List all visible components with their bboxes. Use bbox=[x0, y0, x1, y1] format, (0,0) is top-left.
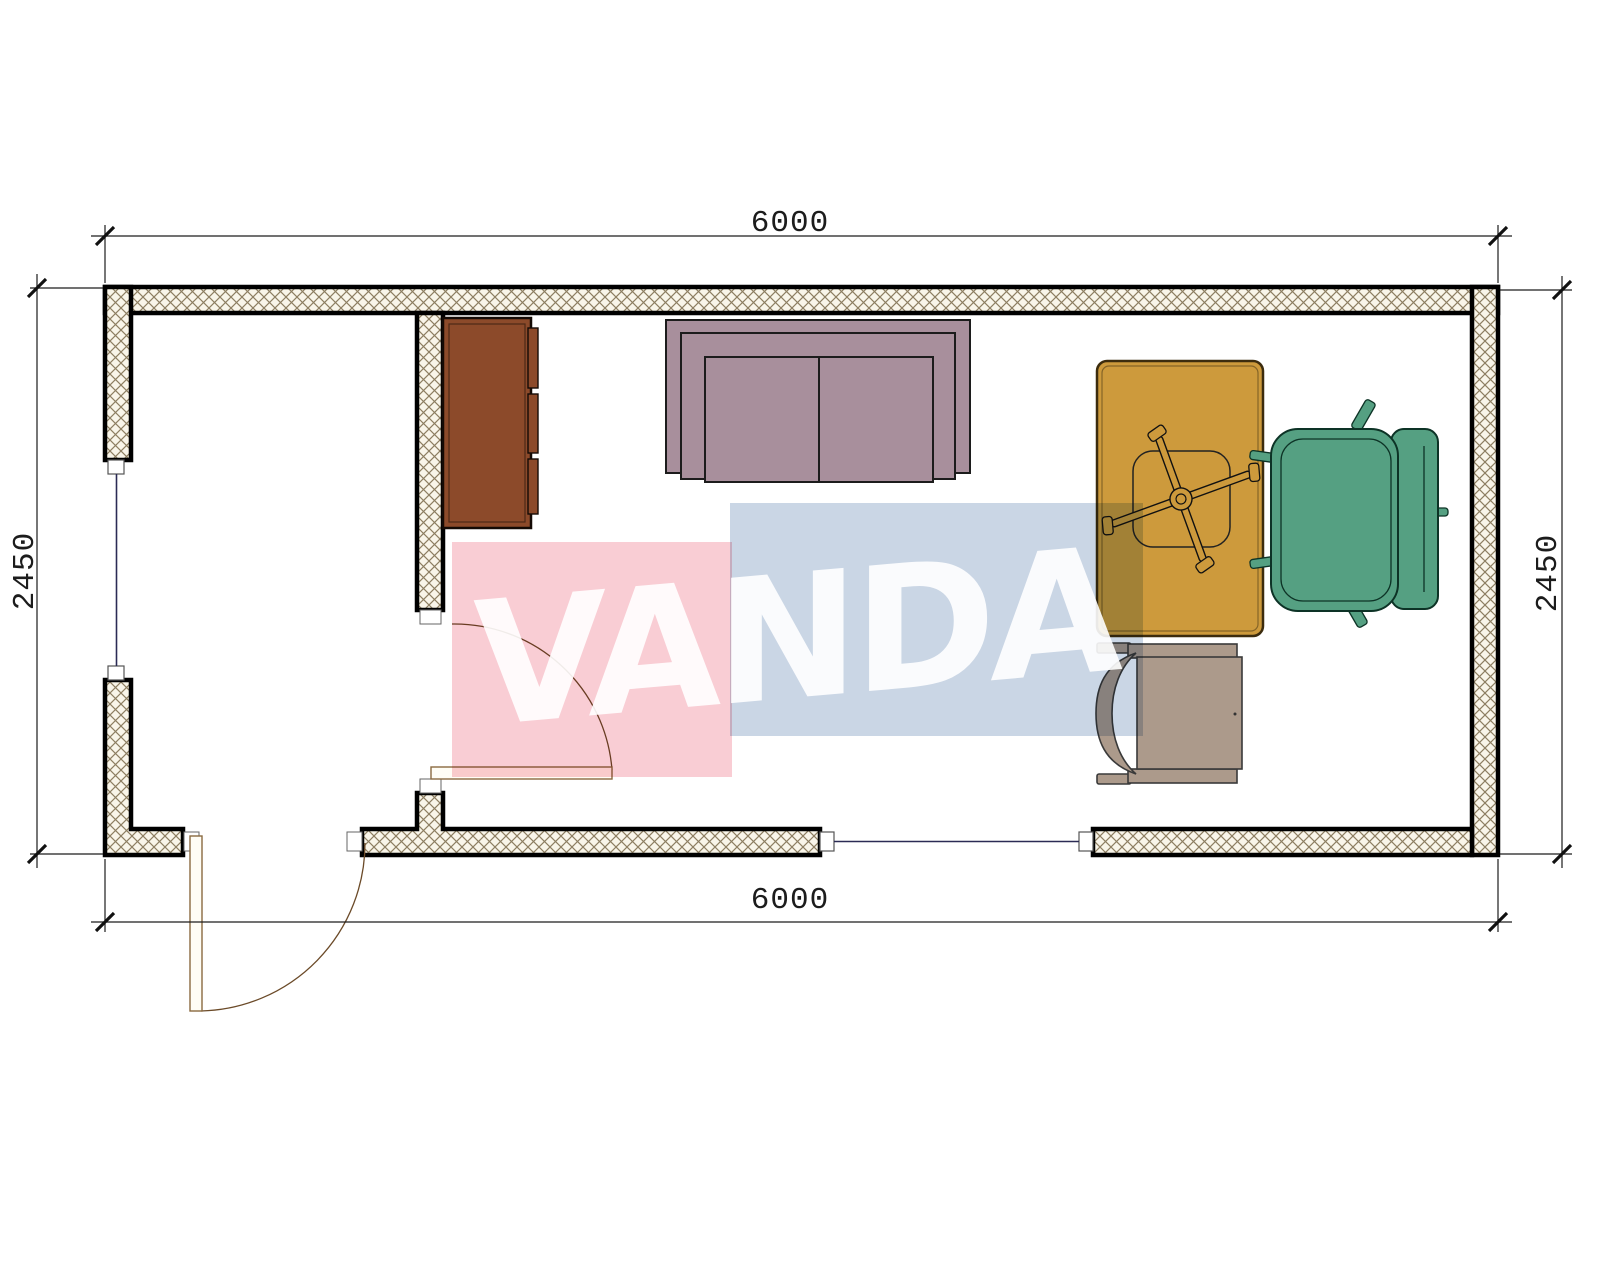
dim-label-right: 2450 bbox=[1531, 534, 1566, 612]
side-chair-bar-top bbox=[1128, 644, 1237, 658]
wall-right bbox=[1472, 287, 1498, 855]
sofa bbox=[666, 320, 970, 482]
dim-label-top: 6000 bbox=[751, 206, 829, 241]
armchair-seat bbox=[1271, 429, 1398, 611]
caster-right bbox=[1249, 463, 1261, 482]
side-chair-bar-bottom bbox=[1128, 769, 1237, 783]
cabinet-door-2 bbox=[528, 394, 538, 453]
window-left-jamb-bottom bbox=[108, 666, 124, 680]
wall-bottom-left-with-stub bbox=[362, 793, 820, 855]
floor-plan-canvas: 6000 6000 2450 2450 VANDA bbox=[0, 0, 1600, 1280]
window-bottom-jamb-left bbox=[820, 832, 834, 851]
entry-door-swing-arc bbox=[201, 843, 365, 1011]
interior-door-jamb-bottom bbox=[420, 779, 441, 793]
window-left-jamb-top bbox=[108, 460, 124, 474]
wall-top bbox=[105, 287, 1498, 313]
cabinet bbox=[443, 318, 538, 528]
side-chair-seat bbox=[1137, 657, 1242, 769]
entry-door-jamb-right bbox=[347, 832, 362, 851]
dim-label-bottom: 6000 bbox=[751, 883, 829, 918]
wall-bottom-right bbox=[1093, 829, 1472, 855]
interior-door-jamb-top bbox=[420, 610, 441, 624]
wall-left-lower-l-shape bbox=[105, 680, 183, 855]
wall-left-upper bbox=[105, 287, 131, 460]
wall-partition bbox=[417, 313, 443, 610]
cabinet-door-3 bbox=[528, 459, 538, 514]
dim-label-left: 2450 bbox=[8, 532, 43, 610]
armchair bbox=[1249, 399, 1448, 629]
side-chair-dot bbox=[1234, 713, 1237, 716]
armchair-foot-top bbox=[1351, 399, 1377, 432]
entry-door-leaf bbox=[190, 836, 202, 1011]
side-chair-arm-bottom bbox=[1097, 774, 1131, 784]
cabinet-door-1 bbox=[528, 328, 538, 388]
cabinet-body bbox=[443, 318, 531, 528]
window-bottom-jamb-right bbox=[1079, 832, 1093, 851]
